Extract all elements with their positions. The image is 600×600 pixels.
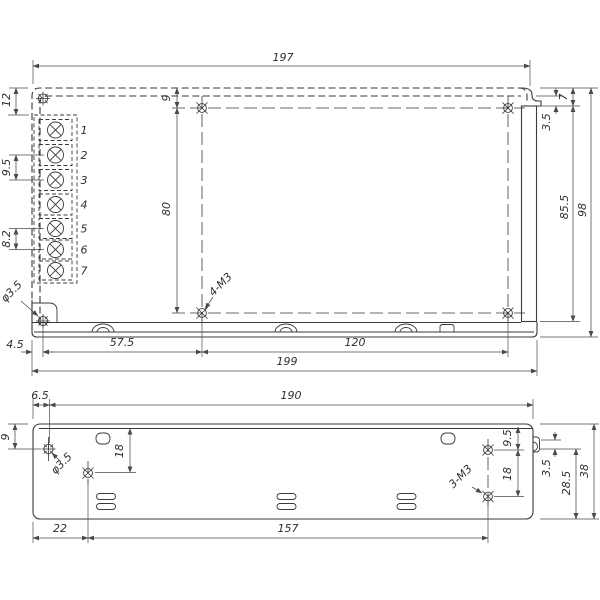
dim-7: 7	[557, 94, 570, 101]
dim-120: 120	[345, 336, 366, 349]
dim-85-5: 85.5	[558, 195, 571, 220]
terminal-screw	[48, 147, 64, 163]
terminal-number-3: 3	[81, 174, 88, 187]
dim-98: 98	[576, 203, 589, 217]
dim-22: 22	[53, 522, 67, 535]
terminal-number-4: 4	[81, 199, 88, 212]
dim-4-m3: 4-M3	[206, 270, 235, 299]
dim-6-5: 6.5	[31, 389, 49, 402]
corner-screw-bottom-left	[36, 314, 50, 328]
terminal-screw	[48, 197, 64, 213]
terminal-screw	[48, 263, 64, 279]
dim-9-side: 9	[0, 434, 12, 441]
dim-18-right: 18	[501, 467, 514, 481]
side-view: 6.5 190 9 18 φ3.5 3-M3 9.5 18	[0, 389, 599, 543]
terminal-block: 1 2 3 4 5 6 7	[34, 115, 88, 283]
dim-197: 197	[273, 51, 294, 64]
dim-9-5-side: 9.5	[501, 429, 514, 447]
mechanical-drawing-canvas: 1 2 3 4 5 6 7 197 12 9.5	[0, 0, 600, 600]
dim-9-5: 9.5	[0, 159, 13, 177]
terminal-number-7: 7	[81, 265, 88, 278]
dim-57-5: 57.5	[110, 336, 135, 349]
terminal-number-2: 2	[81, 149, 88, 162]
terminal-screw	[48, 242, 64, 258]
dim-190: 190	[281, 389, 302, 402]
dim-8-2: 8.2	[0, 230, 13, 248]
dim-3-5-side: 3.5	[540, 459, 553, 477]
dim-199: 199	[277, 355, 298, 368]
side-view-holes	[42, 437, 494, 507]
dim-12: 12	[0, 93, 13, 107]
terminal-number-1: 1	[81, 124, 88, 137]
terminal-screw	[48, 122, 64, 138]
dim-28-5: 28.5	[560, 471, 573, 496]
dim-18-left: 18	[113, 444, 126, 458]
top-view: 1 2 3 4 5 6 7 197 12 9.5	[0, 51, 598, 376]
terminal-number-6: 6	[81, 244, 88, 257]
dim-9-top: 9	[160, 95, 173, 102]
power-supply-dimension-drawing: 1 2 3 4 5 6 7 197 12 9.5	[0, 0, 600, 600]
terminal-screw	[48, 172, 64, 188]
dim-phi3-5-side-view: φ3.5	[48, 450, 75, 477]
dim-3-5-top-view: 3.5	[540, 113, 553, 131]
dim-80: 80	[160, 202, 173, 216]
dim-38: 38	[578, 464, 591, 478]
terminal-screw	[48, 221, 64, 237]
side-view-dimensions: 6.5 190 9 18 φ3.5 3-M3 9.5 18	[0, 389, 599, 543]
side-flange	[522, 106, 537, 322]
dim-157: 157	[278, 522, 299, 535]
corner-screw-top-left	[36, 92, 50, 106]
dim-3-m3: 3-M3	[446, 462, 475, 491]
top-right-hook	[523, 88, 541, 106]
top-view-body-outline	[32, 88, 541, 337]
dim-4-5: 4.5	[6, 338, 24, 351]
terminal-number-5: 5	[81, 223, 88, 236]
